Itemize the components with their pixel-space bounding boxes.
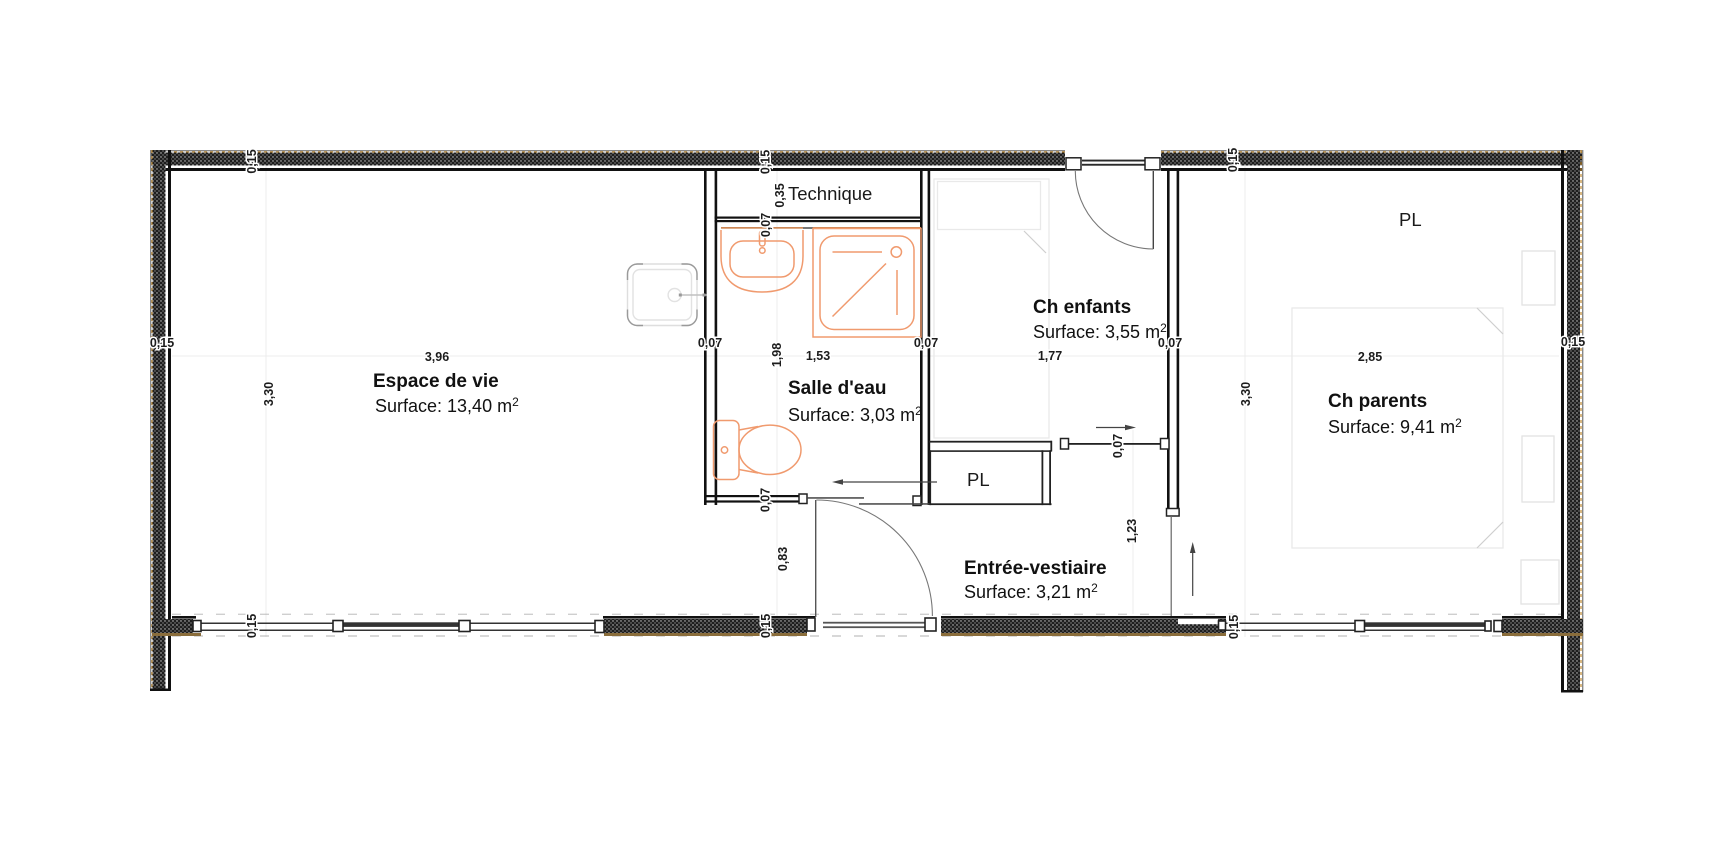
svg-text:0,15: 0,15 [150,336,174,350]
svg-text:1,53: 1,53 [806,349,830,363]
svg-text:0,07: 0,07 [698,336,722,350]
svg-text:0,15: 0,15 [245,614,259,638]
svg-text:0,07: 0,07 [759,488,773,512]
svg-text:Surface: 3,03 m2: Surface: 3,03 m2 [788,404,922,425]
svg-text:0,35: 0,35 [773,183,787,207]
svg-text:3,30: 3,30 [1239,382,1253,406]
svg-text:3,30: 3,30 [262,382,276,406]
svg-text:Salle d'eau: Salle d'eau [788,378,887,399]
svg-text:0,15: 0,15 [245,149,259,173]
svg-text:2,85: 2,85 [1358,350,1382,364]
svg-text:PL: PL [1399,209,1422,230]
svg-text:Surface: 13,40 m2: Surface: 13,40 m2 [375,395,519,416]
svg-text:0,15: 0,15 [1226,148,1240,172]
svg-text:0,15: 0,15 [759,150,773,174]
svg-text:0,07: 0,07 [914,336,938,350]
svg-text:0,15: 0,15 [1561,335,1585,349]
svg-text:Espace de vie: Espace de vie [373,371,499,392]
svg-text:0,07: 0,07 [1158,336,1182,350]
svg-text:Surface: 9,41 m2: Surface: 9,41 m2 [1328,416,1462,437]
svg-text:Ch enfants: Ch enfants [1033,297,1131,318]
svg-text:1,98: 1,98 [770,343,784,367]
svg-text:0,15: 0,15 [1227,615,1241,639]
svg-text:Surface: 3,55 m2: Surface: 3,55 m2 [1033,321,1167,342]
svg-text:3,96: 3,96 [425,350,449,364]
svg-text:Technique: Technique [788,183,872,204]
svg-text:0,07: 0,07 [1111,434,1125,458]
svg-text:Surface: 3,21 m2: Surface: 3,21 m2 [964,581,1098,602]
svg-text:0,07: 0,07 [759,213,773,237]
svg-text:0,83: 0,83 [776,547,790,571]
svg-text:Entrée-vestiaire: Entrée-vestiaire [964,558,1107,579]
svg-text:PL: PL [967,469,990,490]
svg-text:Ch parents: Ch parents [1328,391,1427,412]
svg-text:0,15: 0,15 [759,614,773,638]
svg-text:1,23: 1,23 [1125,519,1139,543]
svg-text:1,77: 1,77 [1038,349,1062,363]
